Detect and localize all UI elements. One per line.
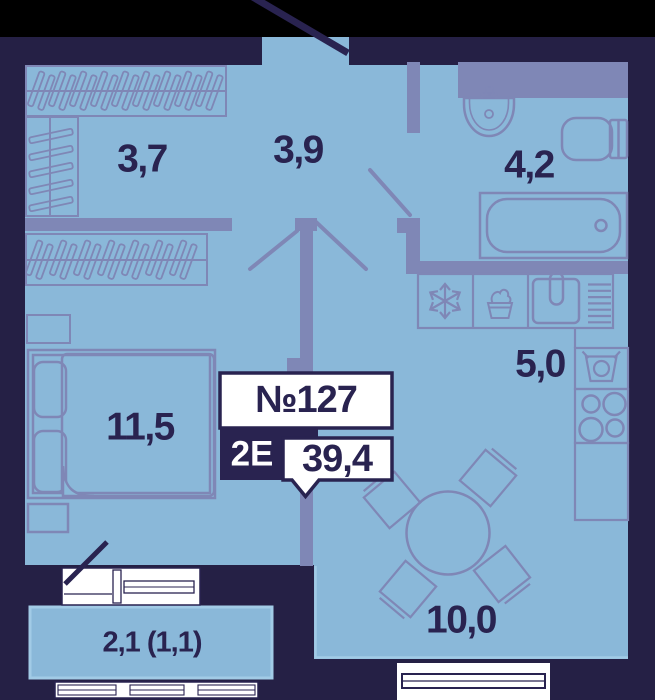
drainboard-lines bbox=[588, 285, 611, 323]
unit-number-label: №127 bbox=[255, 381, 357, 419]
balcony-glazing bbox=[55, 682, 258, 698]
balcony-door-window bbox=[62, 568, 200, 605]
room-area-label-bathroom: 4,2 bbox=[504, 146, 554, 185]
room-area-label-living: 10,0 bbox=[426, 601, 496, 640]
unit-total-area-label: 39,4 bbox=[302, 440, 372, 478]
unit-type-label: 2Е bbox=[231, 437, 274, 472]
room-area-label-wardrobe: 3,7 bbox=[117, 140, 167, 179]
room-area-label-bedroom: 11,5 bbox=[106, 408, 174, 447]
room-area-label-hall: 3,9 bbox=[273, 131, 323, 170]
living-room-window bbox=[397, 663, 550, 700]
outside-top-strip bbox=[0, 0, 655, 37]
room-area-label-balcony: 2,1 (1,1) bbox=[103, 629, 202, 658]
floor-plan: 3,7 3,9 4,2 5,0 11,5 10,0 2,1 (1,1) №127… bbox=[0, 0, 655, 700]
room-area-label-kitchen: 5,0 bbox=[515, 345, 565, 384]
